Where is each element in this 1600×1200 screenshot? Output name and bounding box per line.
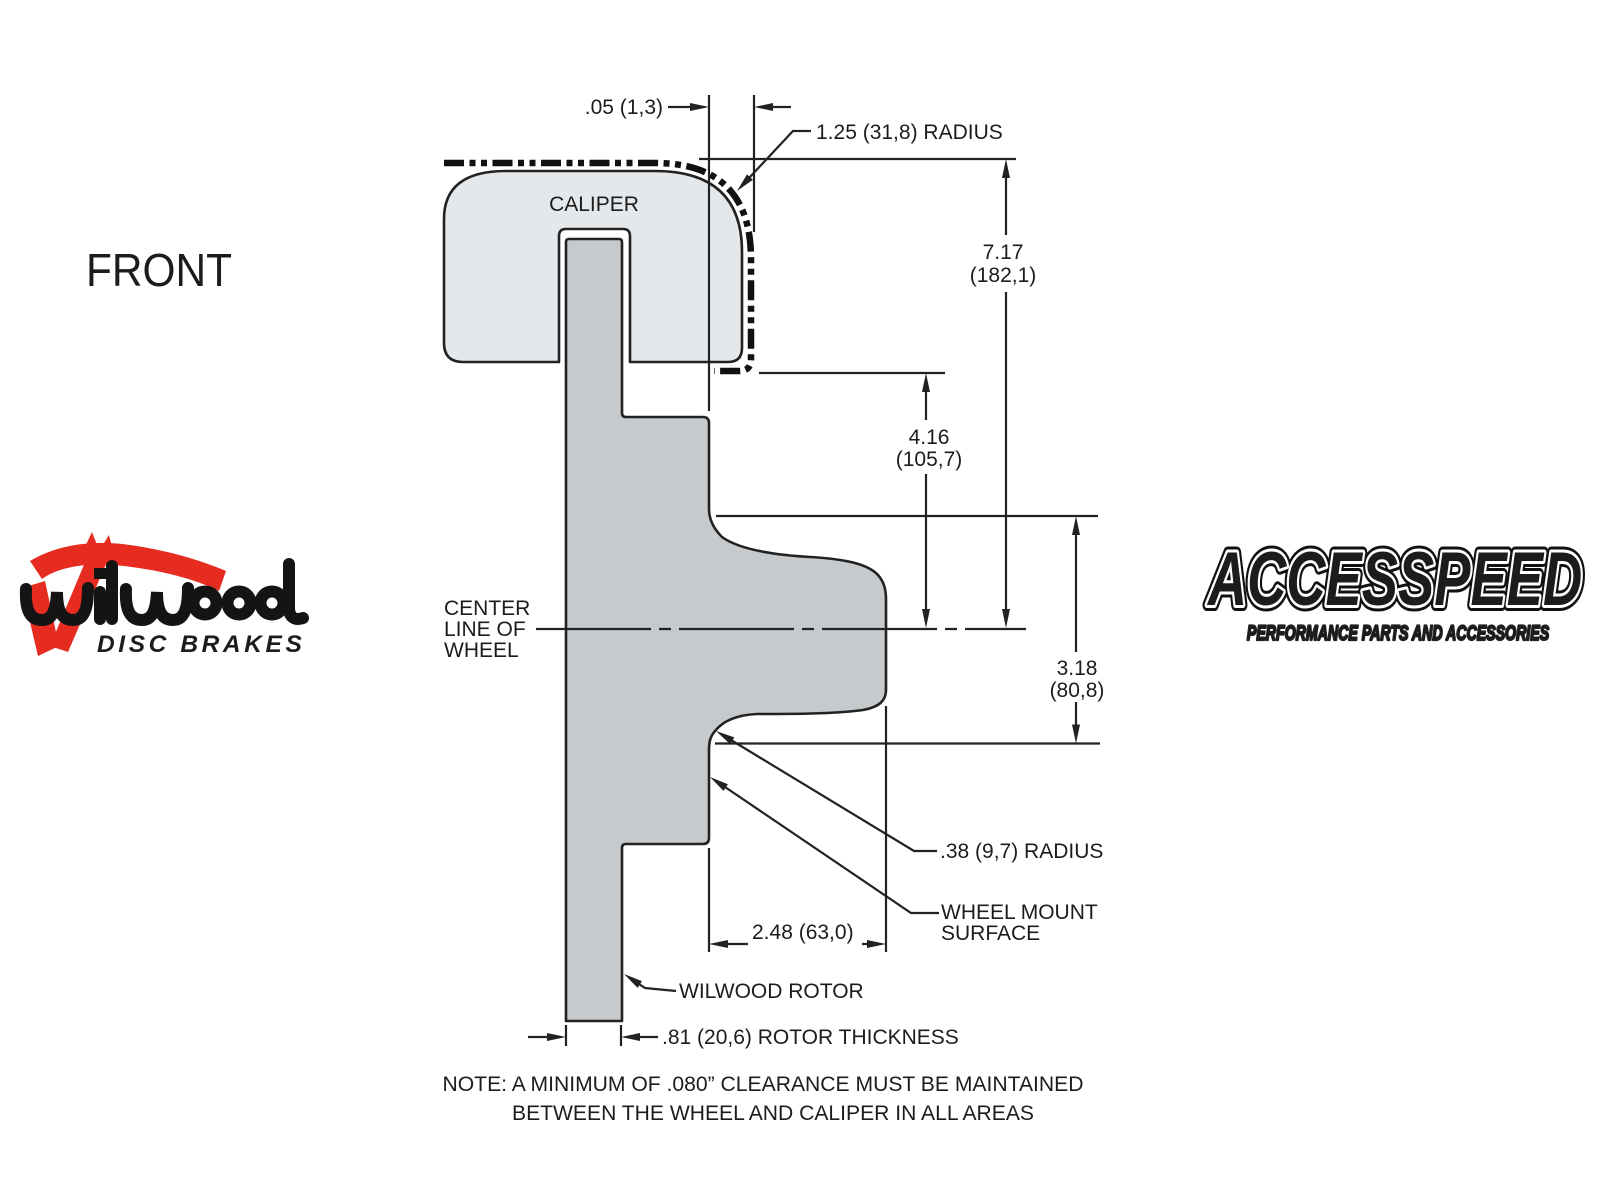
svg-text:(105,7): (105,7) xyxy=(896,448,963,471)
svg-text:CENTER: CENTER xyxy=(444,597,530,620)
svg-text:.81 (20,6) ROTOR THICKNESS: .81 (20,6) ROTOR THICKNESS xyxy=(662,1026,959,1049)
svg-text:NOTE: A MINIMUM OF .080” CLEAR: NOTE: A MINIMUM OF .080” CLEARANCE MUST … xyxy=(443,1073,1084,1096)
svg-text:WILWOOD ROTOR: WILWOOD ROTOR xyxy=(679,980,864,1003)
svg-text:WHEEL: WHEEL xyxy=(444,639,519,662)
svg-text:SURFACE: SURFACE xyxy=(941,922,1040,945)
svg-text:ACCESSPEED: ACCESSPEED xyxy=(1206,536,1582,621)
svg-text:(80,8): (80,8) xyxy=(1050,679,1105,702)
svg-text:7.17: 7.17 xyxy=(983,241,1024,264)
svg-text:.38 (9,7) RADIUS: .38 (9,7) RADIUS xyxy=(940,840,1103,863)
svg-text:DISC BRAKES: DISC BRAKES xyxy=(97,631,305,658)
svg-text:3.18: 3.18 xyxy=(1057,657,1098,680)
svg-text:.05 (1,3): .05 (1,3) xyxy=(585,96,663,119)
svg-text:(182,1): (182,1) xyxy=(970,264,1037,287)
svg-text:WHEEL MOUNT: WHEEL MOUNT xyxy=(941,901,1098,924)
svg-text:2.48 (63,0): 2.48 (63,0) xyxy=(752,921,854,944)
svg-text:BETWEEN THE WHEEL AND CALIPER: BETWEEN THE WHEEL AND CALIPER IN ALL ARE… xyxy=(512,1102,1034,1125)
svg-text:FRONT: FRONT xyxy=(86,244,232,296)
svg-text:CALIPER: CALIPER xyxy=(549,193,639,216)
svg-text:LINE OF: LINE OF xyxy=(444,618,526,641)
svg-text:1.25 (31,8) RADIUS: 1.25 (31,8) RADIUS xyxy=(816,121,1003,144)
svg-text:PERFORMANCE PARTS AND ACCESSOR: PERFORMANCE PARTS AND ACCESSORIES xyxy=(1247,621,1549,644)
svg-text:4.16: 4.16 xyxy=(909,426,950,449)
